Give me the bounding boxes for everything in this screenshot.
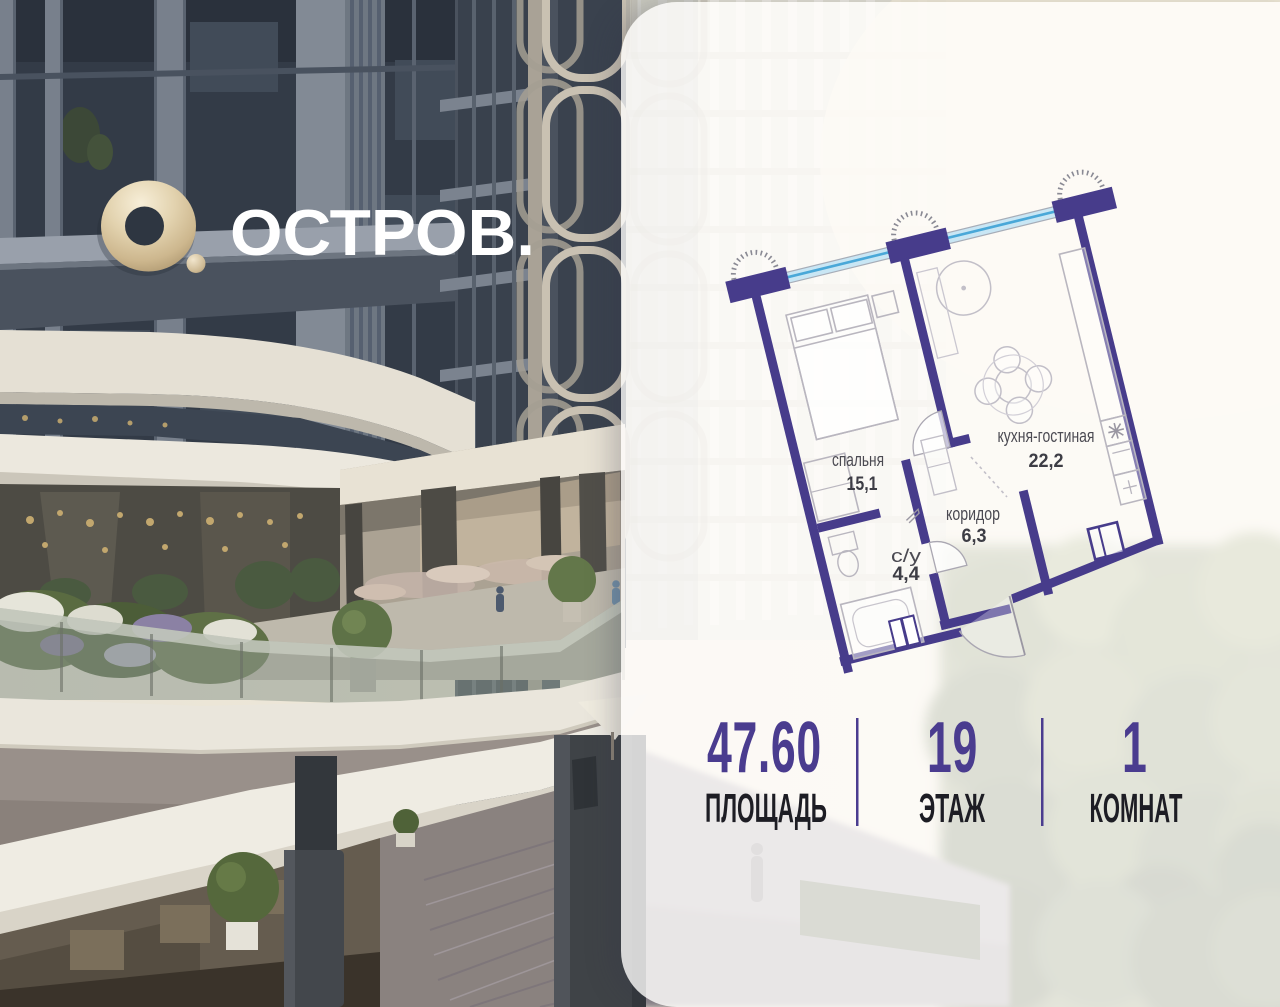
svg-text:1: 1 [1122, 707, 1147, 788]
svg-text:4,4: 4,4 [893, 564, 920, 585]
svg-text:ОСТРОВ.: ОСТРОВ. [230, 196, 535, 269]
svg-text:с/у: с/у [891, 546, 921, 566]
svg-text:22,2: 22,2 [1029, 451, 1064, 472]
svg-text:47.60: 47.60 [707, 707, 822, 788]
svg-text:6,3: 6,3 [962, 526, 987, 547]
svg-text:коридор: коридор [946, 504, 1000, 524]
svg-text:15,1: 15,1 [847, 474, 878, 495]
svg-text:ПЛОЩАДЬ: ПЛОЩАДЬ [705, 785, 827, 831]
svg-text:ЭТАЖ: ЭТАЖ [919, 785, 986, 831]
svg-text:КОМНАТ: КОМНАТ [1090, 785, 1183, 831]
svg-text:19: 19 [927, 707, 978, 788]
svg-text:спальня: спальня [832, 450, 884, 470]
svg-text:кухня-гостиная: кухня-гостиная [998, 426, 1095, 446]
